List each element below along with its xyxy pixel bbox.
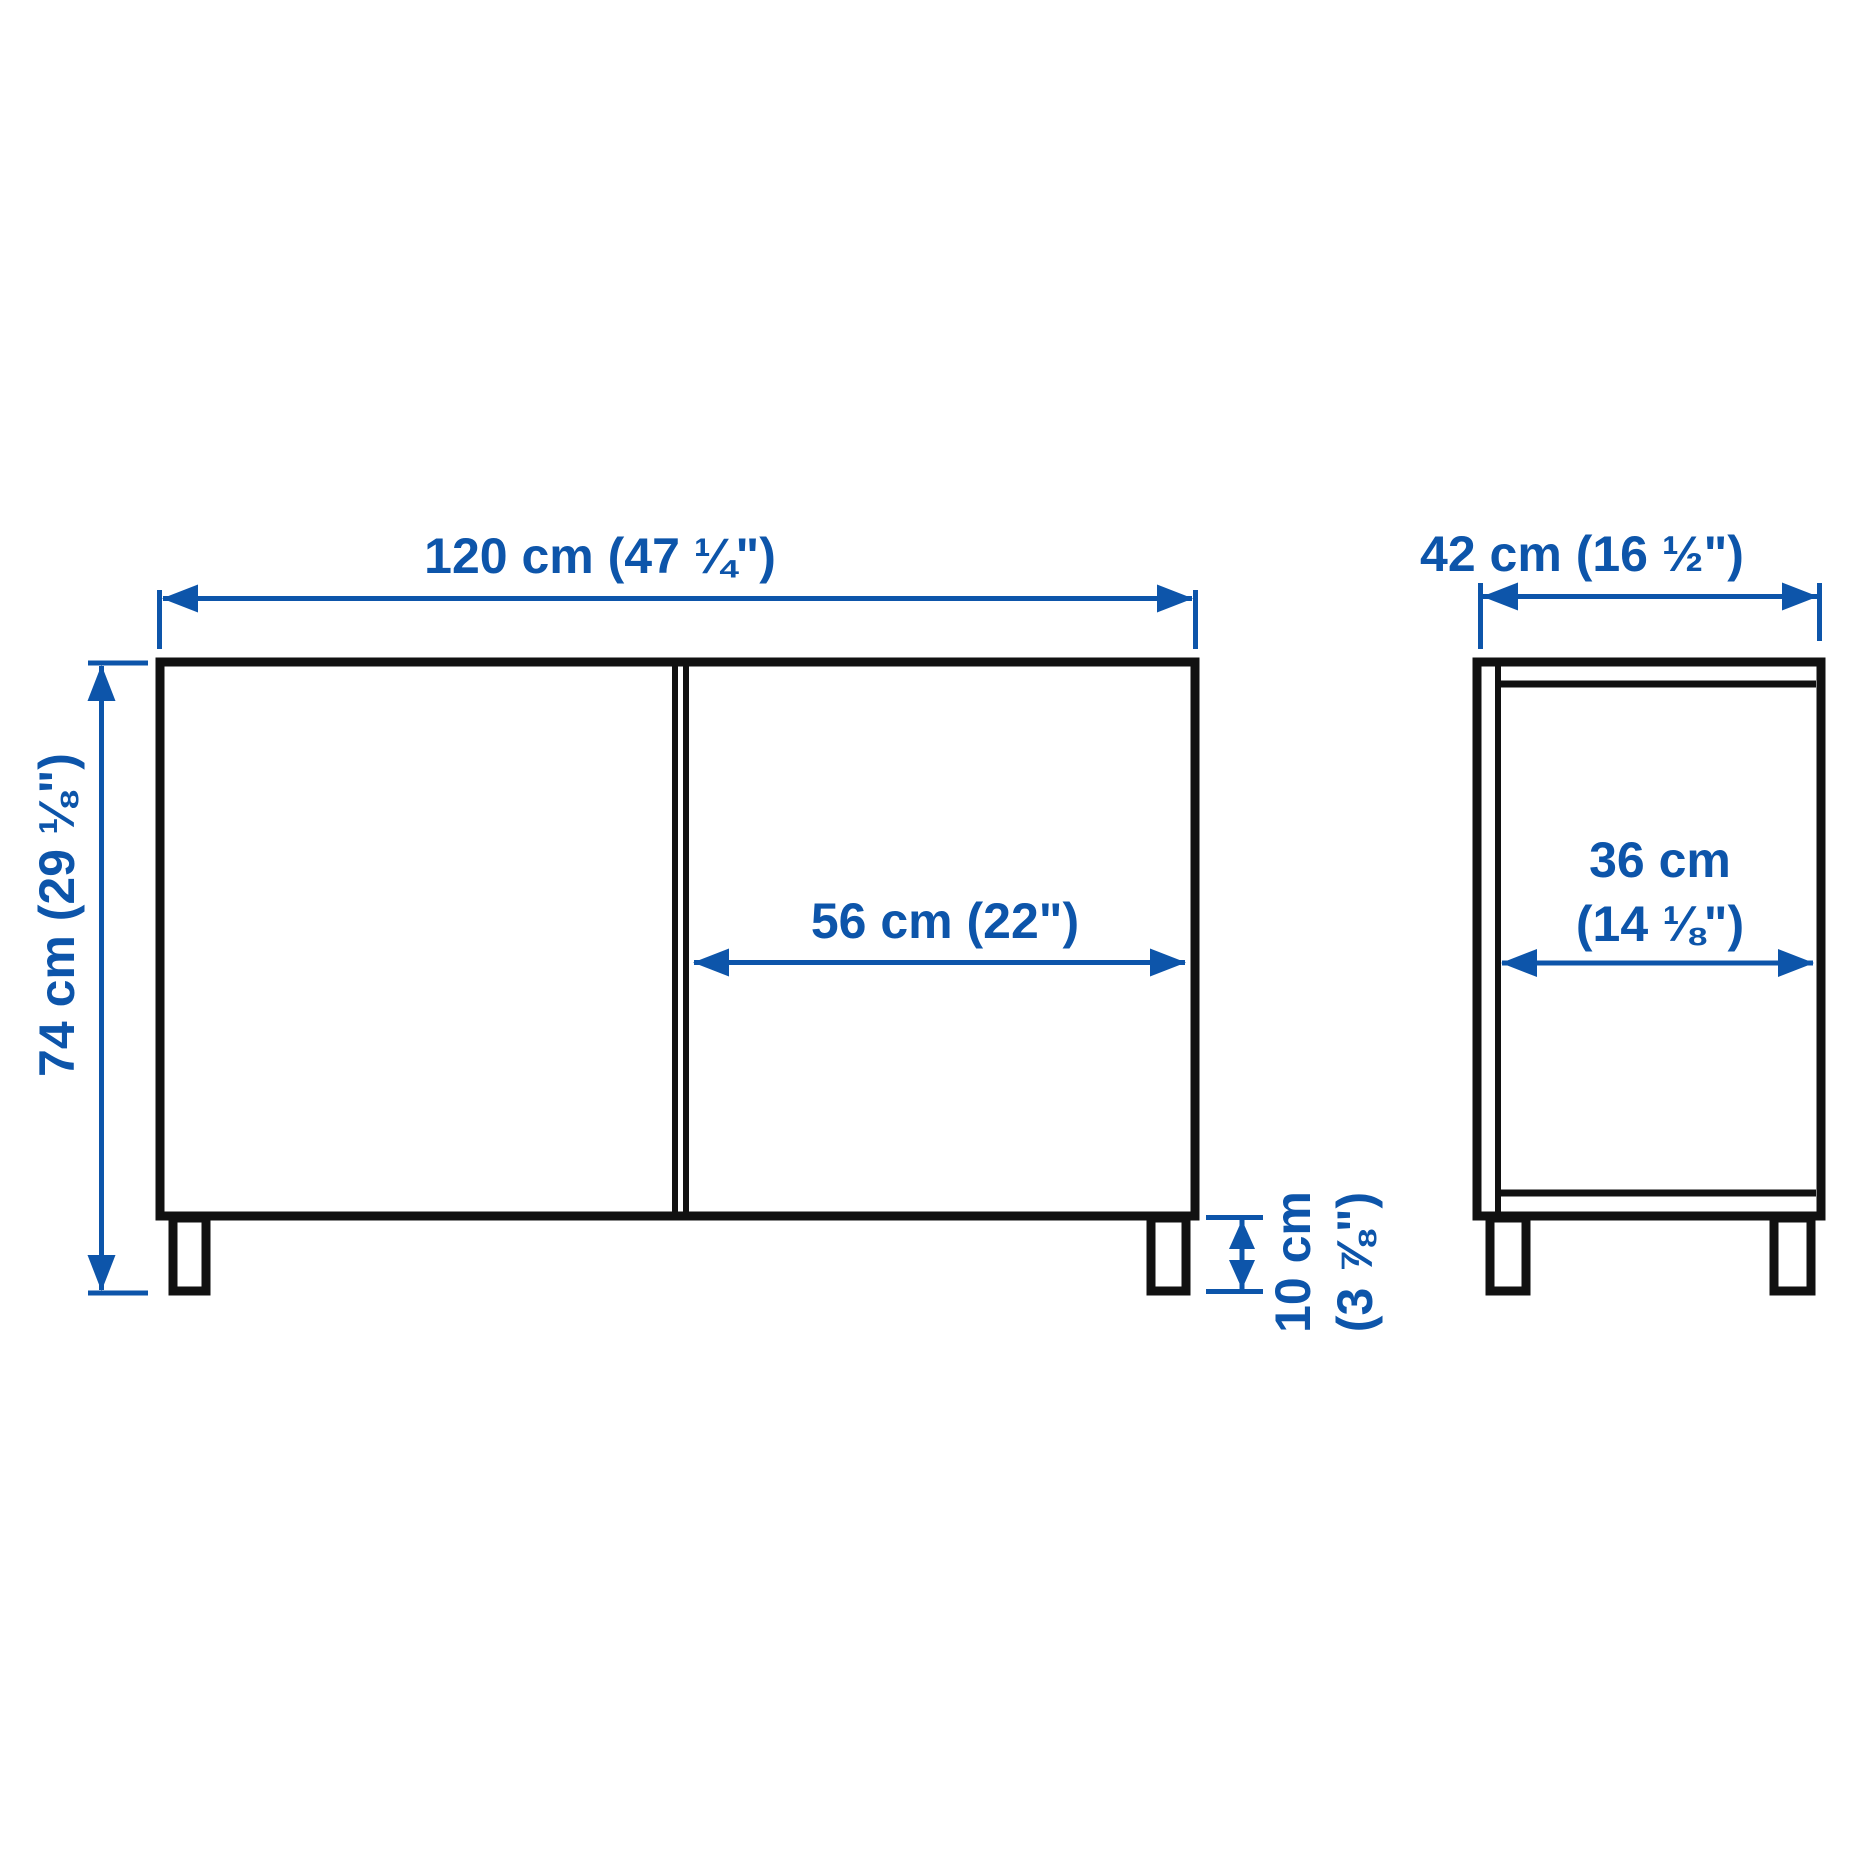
front-view <box>160 662 1195 1291</box>
dimension-diagram-canvas: 120 cm (47 ¼") 74 cm (29 ⅛") 56 cm (22")… <box>0 0 1860 1860</box>
arrowhead-right-icon <box>1157 585 1193 613</box>
depth-label: 42 cm (16 ½") <box>1420 526 1744 582</box>
dimension-leg-height: 10 cm (3 ⅞") <box>1206 1191 1383 1333</box>
arrowhead-left-icon <box>162 585 198 613</box>
inner-depth-label-line1: 36 cm <box>1589 832 1731 888</box>
arrowhead-right-icon <box>1782 583 1818 611</box>
dimension-overall-height: 74 cm (29 ⅛") <box>29 663 148 1293</box>
arrowhead-down-icon <box>1229 1260 1255 1289</box>
arrowhead-up-icon <box>1229 1220 1255 1249</box>
side-leg-left <box>1490 1218 1526 1291</box>
arrowhead-down-icon <box>88 1255 116 1291</box>
front-leg-right <box>1151 1218 1186 1291</box>
front-leg-left <box>173 1218 206 1291</box>
leg-height-label-line2: (3 ⅞") <box>1327 1192 1383 1332</box>
leg-height-label-line1: 10 cm <box>1265 1191 1321 1333</box>
dimension-depth: 42 cm (16 ½") <box>1420 526 1819 649</box>
side-leg-right <box>1774 1218 1811 1291</box>
arrowhead-up-icon <box>88 665 116 701</box>
cabinet-dimension-diagram: 120 cm (47 ¼") 74 cm (29 ⅛") 56 cm (22")… <box>0 0 1860 1860</box>
dimension-overall-width: 120 cm (47 ¼") <box>160 528 1196 649</box>
overall-height-label: 74 cm (29 ⅛") <box>29 753 85 1077</box>
inner-depth-label-line2: (14 ⅛") <box>1576 896 1744 952</box>
side-view <box>1477 662 1821 1291</box>
arrowhead-left-icon <box>1482 583 1518 611</box>
overall-width-label: 120 cm (47 ¼") <box>424 528 776 584</box>
door-width-label: 56 cm (22") <box>811 893 1079 949</box>
